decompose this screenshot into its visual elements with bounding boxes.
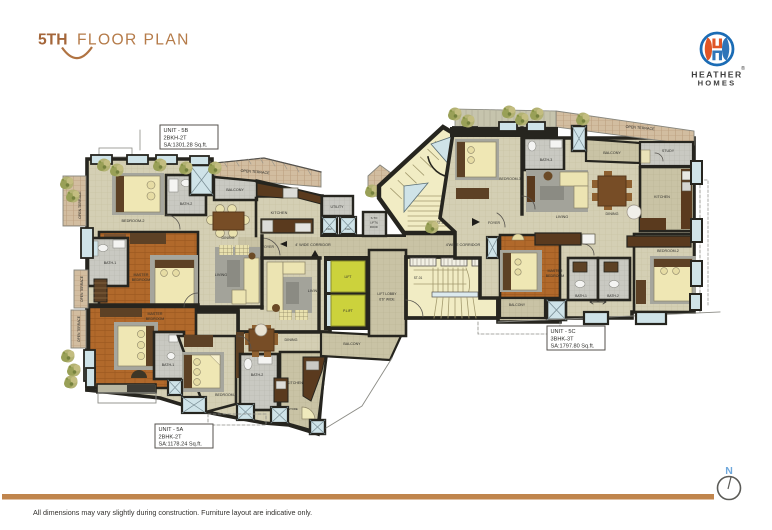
svg-text:BALCONY: BALCONY xyxy=(509,303,526,307)
svg-text:All dimensions may vary slight: All dimensions may vary slightly during … xyxy=(33,508,312,517)
svg-text:UNIT - 5C: UNIT - 5C xyxy=(551,329,576,335)
svg-text:BATH-1: BATH-1 xyxy=(575,294,587,298)
svg-text:4'WIDE CORRIDOR: 4'WIDE CORRIDOR xyxy=(446,243,481,247)
svg-text:BATH-3: BATH-3 xyxy=(540,158,553,162)
svg-text:MASTER: MASTER xyxy=(148,312,163,316)
svg-text:DINING: DINING xyxy=(285,338,298,342)
svg-text:SA:1301.28 Sq.ft.: SA:1301.28 Sq.ft. xyxy=(164,143,208,149)
svg-text:BALCONY: BALCONY xyxy=(343,342,361,346)
svg-text:BEDROOM-2: BEDROOM-2 xyxy=(122,219,145,223)
svg-text:LIFT&: LIFT& xyxy=(370,221,378,225)
svg-text:OPEN TERRACE: OPEN TERRACE xyxy=(77,315,81,342)
svg-text:®: ® xyxy=(741,65,745,72)
svg-text:SA:1178.24 Sq.ft.: SA:1178.24 Sq.ft. xyxy=(159,442,203,448)
svg-text:MASTER: MASTER xyxy=(548,269,563,273)
svg-text:LIFT LOBBY: LIFT LOBBY xyxy=(377,292,397,296)
svg-text:BEDROOM: BEDROOM xyxy=(546,274,565,278)
svg-text:KITCHEN: KITCHEN xyxy=(654,195,670,199)
svg-text:BEDROOM: BEDROOM xyxy=(132,278,151,282)
svg-text:STORE: STORE xyxy=(288,407,298,411)
svg-text:STUDY: STUDY xyxy=(662,149,675,153)
svg-text:BATH-1: BATH-1 xyxy=(162,363,175,367)
svg-text:DINING: DINING xyxy=(606,212,619,216)
svg-text:3BHK-3T: 3BHK-3T xyxy=(551,337,575,343)
svg-text:KITCHEN: KITCHEN xyxy=(271,211,288,215)
svg-text:FOYER: FOYER xyxy=(262,245,275,249)
svg-text:ROOF: ROOF xyxy=(370,225,379,229)
svg-text:SA:1797.80 Sq.ft.: SA:1797.80 Sq.ft. xyxy=(551,344,595,350)
svg-text:UNIT - 5B: UNIT - 5B xyxy=(164,128,189,134)
svg-text:FOYER: FOYER xyxy=(488,221,501,225)
svg-text:BALCONY: BALCONY xyxy=(603,151,621,155)
svg-text:LIFT: LIFT xyxy=(345,275,352,279)
svg-text:2BKH-2T: 2BKH-2T xyxy=(164,136,188,142)
svg-text:LIVING: LIVING xyxy=(308,289,320,293)
svg-text:LIVING: LIVING xyxy=(556,215,568,219)
svg-text:BEDROOM-2: BEDROOM-2 xyxy=(215,393,237,397)
svg-text:BATH-2: BATH-2 xyxy=(607,294,619,298)
svg-text:BEDROOM-2: BEDROOM-2 xyxy=(657,249,679,253)
svg-text:FH2: FH2 xyxy=(345,227,351,231)
svg-text:N: N xyxy=(725,465,733,477)
svg-text:OPEN TERRACE: OPEN TERRACE xyxy=(80,275,84,302)
svg-text:FLOOR PLAN: FLOOR PLAN xyxy=(77,32,190,49)
svg-text:S.TO: S.TO xyxy=(371,216,378,220)
svg-text:BALCONY: BALCONY xyxy=(226,188,244,192)
svg-text:ST-01: ST-01 xyxy=(414,276,423,280)
svg-text:6'6" WIDE: 6'6" WIDE xyxy=(379,298,395,302)
svg-text:HOMES: HOMES xyxy=(698,79,737,88)
svg-text:UNIT - 5A: UNIT - 5A xyxy=(159,427,184,433)
svg-text:2BHK-2T: 2BHK-2T xyxy=(159,435,183,441)
svg-text:UTILITY: UTILITY xyxy=(330,205,344,209)
svg-text:FD2: FD2 xyxy=(326,227,332,231)
svg-text:4' WIDE CORRIDOR: 4' WIDE CORRIDOR xyxy=(295,243,331,247)
svg-text:DINING: DINING xyxy=(222,236,235,240)
svg-text:BATH-2: BATH-2 xyxy=(251,373,264,377)
svg-text:P.LIFT: P.LIFT xyxy=(343,309,353,313)
svg-text:BATH-2: BATH-2 xyxy=(180,202,193,206)
svg-text:BEDROOM: BEDROOM xyxy=(146,317,165,321)
svg-text:MASTER: MASTER xyxy=(134,273,149,277)
svg-text:LIVING: LIVING xyxy=(215,273,227,277)
svg-text:KITCHEN: KITCHEN xyxy=(287,381,303,385)
svg-text:BATH-1: BATH-1 xyxy=(104,261,117,265)
svg-text:5TH: 5TH xyxy=(38,32,67,49)
svg-text:BEDROOM-3: BEDROOM-3 xyxy=(499,177,521,181)
